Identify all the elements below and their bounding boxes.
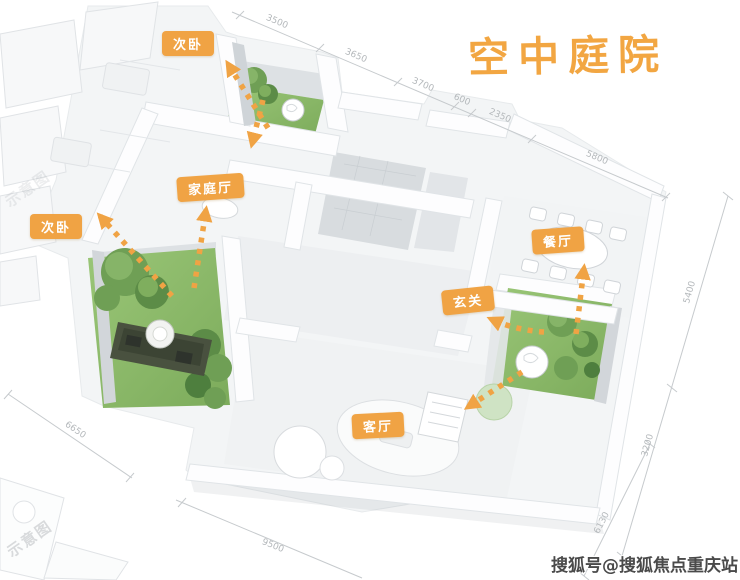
dim-right-1: 5400 (682, 280, 698, 305)
floor-plan-rendering: 3500 3650 3700 600 2350 5800 5400 3200 9… (0, 0, 740, 580)
dim-top-3: 3700 (410, 76, 435, 94)
room-label-living: 客厅 (351, 412, 404, 440)
floor-plant (476, 384, 512, 420)
dim-top-2: 3650 (343, 47, 368, 65)
page-title: 空中庭院 (467, 20, 698, 84)
room-label-bedroom-left: 次卧 (30, 214, 82, 239)
dim-bottom: 9500 (260, 537, 285, 555)
sky-courtyard-floorplan: 3500 3650 3700 600 2350 5800 5400 3200 9… (0, 0, 740, 580)
garden-table (282, 99, 304, 121)
dim-left: 6650 (63, 420, 88, 441)
dim-top-1: 3500 (264, 13, 289, 31)
room-label-family-hall: 家庭厅 (176, 173, 245, 203)
watermark-sohu: 搜狐号@搜狐焦点重庆站 (551, 551, 738, 576)
left-garden (88, 242, 232, 409)
room-label-dining: 餐厅 (531, 226, 585, 255)
round-chair (274, 426, 326, 478)
dim-right-2: 3200 (640, 433, 656, 458)
room-label-bedroom-top: 次卧 (162, 31, 214, 56)
